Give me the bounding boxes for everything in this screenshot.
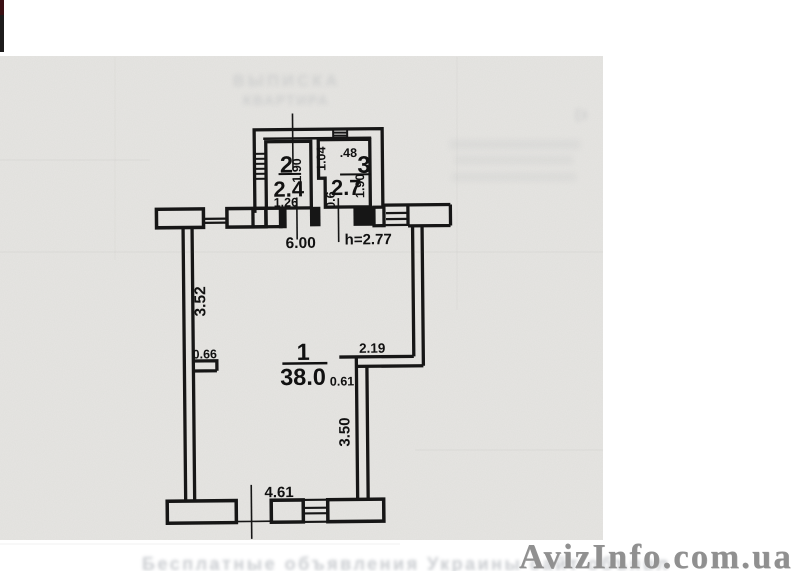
svg-text:.48: .48 — [340, 146, 358, 160]
svg-text:4.61: 4.61 — [264, 484, 293, 501]
svg-text:ВЫПИСКА: ВЫПИСКА — [233, 73, 341, 90]
svg-text:1.90: 1.90 — [353, 174, 367, 199]
svg-text:h=2.77: h=2.77 — [345, 231, 392, 248]
svg-text:6.00: 6.00 — [286, 235, 316, 252]
svg-text:2.19: 2.19 — [359, 341, 385, 356]
svg-text:38.0: 38.0 — [280, 364, 326, 390]
svg-text:3.50: 3.50 — [336, 417, 353, 446]
svg-text:(з: (з — [575, 106, 587, 123]
svg-text:1.90: 1.90 — [290, 158, 304, 183]
svg-text:1.26: 1.26 — [274, 195, 299, 209]
svg-text:3.52: 3.52 — [192, 286, 209, 316]
svg-text:КВАРТИРА: КВАРТИРА — [243, 92, 329, 108]
svg-text:1: 1 — [297, 339, 310, 365]
svg-text:1.04: 1.04 — [314, 146, 328, 171]
svg-text:0.61: 0.61 — [330, 374, 355, 388]
svg-text:0.66: 0.66 — [193, 347, 218, 361]
svg-text:0.6: 0.6 — [324, 191, 338, 209]
